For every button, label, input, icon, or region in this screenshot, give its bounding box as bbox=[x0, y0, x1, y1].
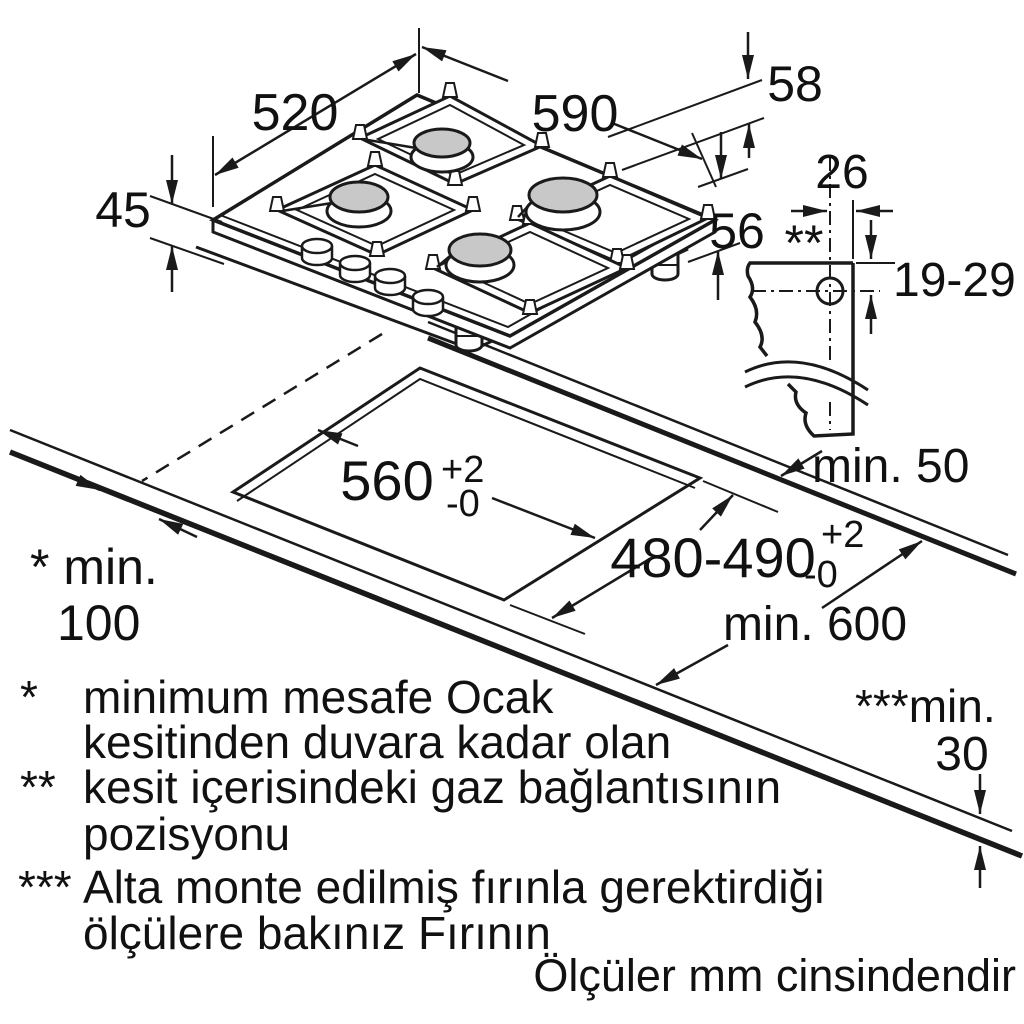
footnote-text: pozisyonu bbox=[83, 808, 290, 860]
oven-clearance-value: 30 bbox=[935, 728, 988, 781]
control-knob bbox=[375, 269, 405, 295]
hob-installation-diagram: 560 +2 -0 480-490 +2 -0 min. 50 min. 600… bbox=[0, 0, 1024, 1024]
gas-offset-value: 26 bbox=[815, 146, 868, 199]
dimension-oven-clearance: ***min. 30 bbox=[855, 680, 996, 888]
gas-connection-detail: 26 ** 19-29 bbox=[745, 146, 1016, 436]
dimension-back-clearance: min. 50 bbox=[781, 440, 969, 493]
dimension-45: 45 bbox=[95, 155, 224, 292]
burner-cap bbox=[529, 178, 597, 212]
cutout-width-tol-minus: -0 bbox=[446, 483, 480, 525]
cutout-width-value: 560 bbox=[340, 449, 433, 512]
cutout-extension-right bbox=[703, 481, 778, 512]
footnote-text: ölçülere bakınız Fırının bbox=[83, 907, 551, 959]
burner-cap bbox=[414, 129, 470, 157]
worktop-depth-value: min. 600 bbox=[723, 598, 907, 651]
back-clearance-value: min. 50 bbox=[812, 440, 969, 493]
dimension-wall-clearance: * min. 100 bbox=[30, 469, 197, 651]
height-45-value: 45 bbox=[95, 182, 151, 238]
worktop-cutout bbox=[233, 368, 778, 634]
gas-position-marker: ** bbox=[785, 215, 824, 271]
worktop-back-top-edge bbox=[428, 322, 1008, 555]
cutout-depth-tol-minus: -0 bbox=[804, 554, 838, 596]
burner-cap bbox=[330, 182, 388, 212]
wall-clearance-label: * min. bbox=[30, 539, 158, 595]
dimension-cutout-width: 560 +2 -0 bbox=[318, 430, 595, 538]
control-knob bbox=[340, 256, 370, 282]
control-knob bbox=[302, 239, 332, 265]
diagram-drawing: 560 +2 -0 480-490 +2 -0 min. 50 min. 600… bbox=[0, 0, 1024, 1024]
units-note: Ölçüler mm cinsindendir bbox=[533, 950, 1016, 1001]
oven-clearance-label: ***min. bbox=[855, 680, 996, 732]
wall-clearance-value: 100 bbox=[57, 595, 140, 651]
footnote-text: kesit içerisindeki gaz bağlantısının bbox=[83, 761, 781, 813]
burner-cap bbox=[449, 234, 511, 266]
footnote-marker: ** bbox=[20, 761, 56, 813]
cutout-extension-bottom bbox=[510, 605, 585, 634]
footnote-marker: *** bbox=[18, 861, 72, 913]
gas-height-range-value: 19-29 bbox=[893, 254, 1016, 307]
cutout-depth-value: 480-490 bbox=[610, 526, 816, 589]
width-front-value: 590 bbox=[532, 85, 619, 143]
break-line-lower bbox=[745, 377, 868, 405]
break-line-upper bbox=[745, 362, 868, 390]
gas-bracket-upper-outline bbox=[747, 263, 853, 356]
footnote-text: Alta monte edilmiş fırınla gerektirdiği bbox=[83, 861, 824, 913]
width-top-value: 520 bbox=[252, 84, 339, 142]
dimension-58: 58 bbox=[608, 32, 823, 170]
height-58-value: 58 bbox=[767, 56, 823, 112]
height-56-value: 56 bbox=[709, 203, 765, 259]
control-knob bbox=[413, 290, 443, 316]
cutout-depth-tol-plus: +2 bbox=[821, 514, 864, 556]
footnote-marker: * bbox=[20, 671, 38, 723]
